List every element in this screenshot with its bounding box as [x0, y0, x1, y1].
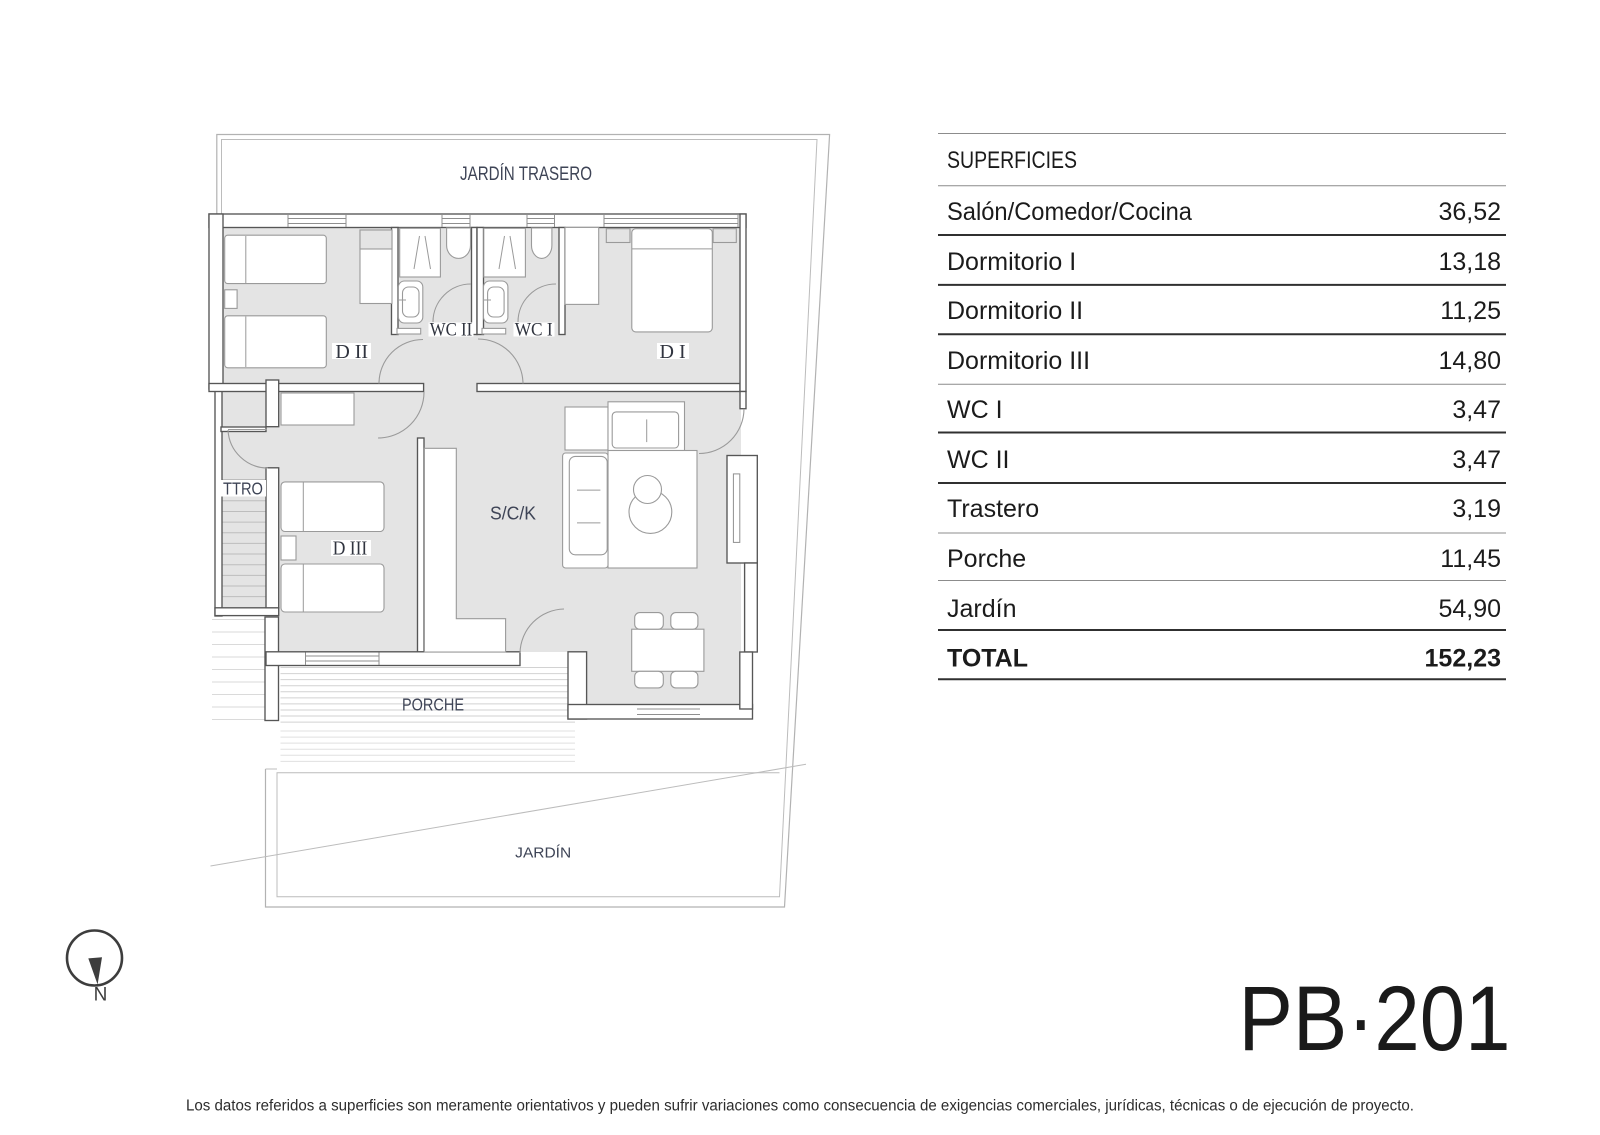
svg-text:D II: D II [335, 341, 368, 363]
svg-text:WC I: WC I [947, 396, 1003, 424]
svg-text:3,47: 3,47 [1452, 396, 1501, 424]
svg-text:TOTAL: TOTAL [947, 645, 1028, 673]
svg-text:Salón/Comedor/Cocina: Salón/Comedor/Cocina [947, 198, 1192, 226]
svg-text:Jardín: Jardín [947, 595, 1016, 623]
svg-text:11,25: 11,25 [1440, 297, 1501, 325]
svg-text:3,19: 3,19 [1452, 495, 1501, 523]
svg-text:Dormitorio I: Dormitorio I [947, 248, 1076, 276]
svg-text:Porche: Porche [947, 545, 1026, 573]
svg-text:N: N [94, 985, 108, 1006]
svg-text:3,47: 3,47 [1452, 446, 1501, 474]
svg-text:Dormitorio III: Dormitorio III [947, 347, 1090, 375]
svg-text:S/C/K: S/C/K [490, 504, 536, 524]
svg-text:Los datos referidos a superfic: Los datos referidos a superficies son me… [186, 1098, 1414, 1115]
svg-text:36,52: 36,52 [1438, 198, 1501, 226]
svg-text:152,23: 152,23 [1425, 645, 1501, 673]
svg-text:Dormitorio II: Dormitorio II [947, 297, 1083, 325]
svg-text:D I: D I [660, 341, 686, 363]
svg-text:WC II: WC II [947, 446, 1010, 474]
svg-text:SUPERFICIES: SUPERFICIES [947, 147, 1077, 174]
svg-text:Trastero: Trastero [947, 495, 1039, 523]
svg-text:54,90: 54,90 [1438, 595, 1501, 623]
svg-text:PB·201: PB·201 [1239, 968, 1511, 1070]
svg-text:JARDÍN TRASERO: JARDÍN TRASERO [460, 164, 592, 185]
svg-text:PORCHE: PORCHE [402, 695, 464, 715]
svg-text:14,80: 14,80 [1438, 347, 1501, 375]
svg-text:WC I: WC I [515, 319, 553, 340]
svg-text:TTRO: TTRO [223, 479, 263, 499]
svg-text:JARDÍN: JARDÍN [515, 845, 571, 862]
svg-text:13,18: 13,18 [1438, 248, 1501, 276]
svg-text:11,45: 11,45 [1440, 545, 1501, 573]
svg-text:WC II: WC II [430, 319, 473, 340]
svg-text:D III: D III [333, 537, 368, 559]
